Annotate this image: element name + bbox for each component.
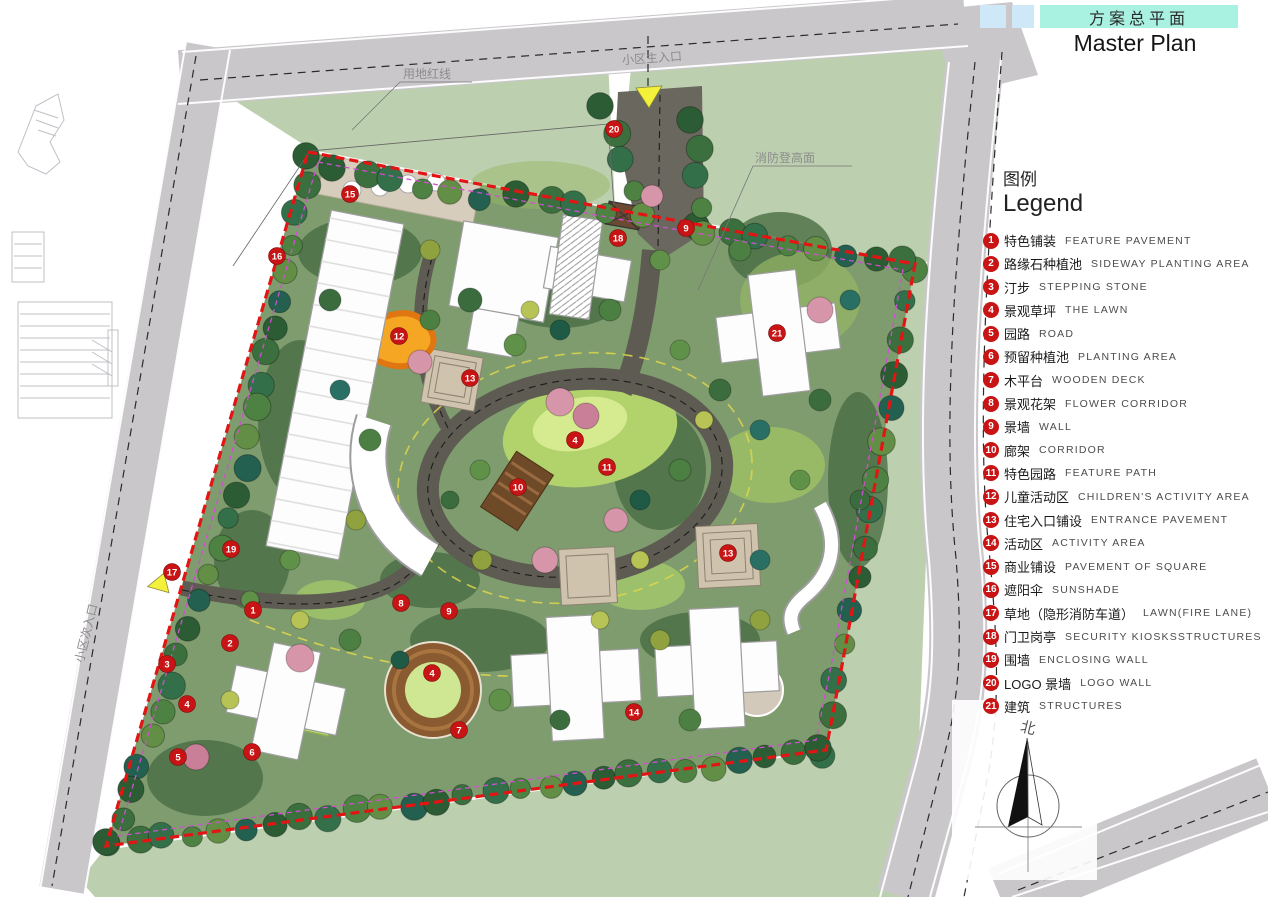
legend-item-en: CORRIDOR (1039, 444, 1106, 456)
plan-marker-number: 15 (345, 189, 356, 200)
legend-item-number: 1 (983, 233, 999, 249)
plan-marker-number: 4 (429, 668, 435, 679)
legend-item-en: LOGO WALL (1080, 677, 1152, 689)
legend-item-en: ENCLOSING WALL (1039, 654, 1149, 666)
legend-item-en: LAWN(FIRE LANE) (1143, 607, 1252, 619)
plan-marker: 13 (462, 370, 479, 387)
legend-item-zh: 特色铺装 (1004, 231, 1056, 250)
legend-item: 2路缘石种植池SIDEWAY PLANTING AREA (983, 255, 1266, 272)
legend-item-en: ROAD (1039, 328, 1074, 340)
legend-item-number: 19 (983, 652, 999, 668)
legend-item-zh: 预留种植池 (1004, 347, 1069, 366)
plan-marker-number: 6 (249, 747, 254, 758)
plan-marker-number: 3 (164, 659, 169, 670)
legend-item-zh: 廊架 (1004, 441, 1030, 460)
legend-item: 13住宅入口铺设ENTRANCE PAVEMENT (983, 512, 1266, 529)
adjacent-cad-outlines (12, 94, 118, 418)
legend-item-zh: 活动区 (1004, 534, 1043, 553)
legend-item-en: PAVEMENT OF SQUARE (1065, 561, 1207, 573)
plan-marker: 9 (678, 220, 695, 237)
plan-marker: 13 (720, 545, 737, 562)
plan-marker-number: 7 (456, 725, 461, 736)
legend-item-en: PLANTING AREA (1078, 351, 1177, 363)
legend-item-number: 5 (983, 326, 999, 342)
legend-item-number: 10 (983, 442, 999, 458)
legend-item: 3汀步STEPPING STONE (983, 279, 1266, 296)
plan-marker: 4 (179, 696, 196, 713)
legend-item: 5园路ROAD (983, 325, 1266, 342)
legend-item: 9景墙WALL (983, 418, 1266, 435)
legend-item: 11特色园路FEATURE PATH (983, 465, 1266, 482)
plan-marker-number: 4 (572, 435, 578, 446)
legend-item-number: 17 (983, 605, 999, 621)
plan-marker-number: 9 (683, 223, 688, 234)
plan-marker: 9 (441, 603, 458, 620)
legend-item-number: 2 (983, 256, 999, 272)
legend-item: 6预留种植池PLANTING AREA (983, 348, 1266, 365)
legend-item-en: STEPPING STONE (1039, 281, 1148, 293)
legend-item-en: FLOWER CORRIDOR (1065, 398, 1188, 410)
plan-marker-number: 16 (272, 251, 283, 262)
legend-item-en: ENTRANCE PAVEMENT (1091, 514, 1228, 526)
legend-item-number: 20 (983, 675, 999, 691)
legend-item-zh: 景观花架 (1004, 394, 1056, 413)
legend-item-number: 15 (983, 559, 999, 575)
legend-title-zh: 图例 (1003, 165, 1266, 190)
plan-marker-number: 19 (226, 544, 237, 555)
legend-item-number: 14 (983, 535, 999, 551)
plan-marker: 7 (451, 722, 468, 739)
plan-marker-number: 14 (629, 707, 640, 718)
legend-item-en: SIDEWAY PLANTING AREA (1091, 258, 1250, 270)
legend-item: 1特色铺装FEATURE PAVEMENT (983, 232, 1266, 249)
plan-marker: 20 (606, 121, 623, 138)
plan-marker: 3 (159, 656, 176, 673)
plan-marker-number: 5 (175, 752, 181, 763)
legend-item-number: 18 (983, 629, 999, 645)
plan-marker: 16 (269, 248, 286, 265)
title-square-2 (1012, 5, 1034, 28)
plan-marker: 8 (393, 595, 410, 612)
master-plan-page: 用地红线 小区主入口 消防登高面 小区次入口 20151618921121341… (0, 0, 1268, 897)
legend-item: 20LOGO 景墙LOGO WALL (983, 675, 1266, 692)
legend-item-zh: 门卫岗亭 (1004, 627, 1056, 646)
legend-item-en: ACTIVITY AREA (1052, 537, 1146, 549)
plan-marker: 4 (424, 665, 441, 682)
legend-item-zh: 路缘石种植池 (1004, 254, 1082, 273)
plan-marker-number: 17 (167, 567, 178, 578)
legend-item: 19围墙ENCLOSING WALL (983, 651, 1266, 668)
plan-marker-number: 13 (723, 548, 734, 559)
legend-item-zh: 草地（隐形消防车道） (1004, 604, 1134, 623)
plan-marker: 12 (391, 328, 408, 345)
legend-item-number: 12 (983, 489, 999, 505)
legend-item: 17草地（隐形消防车道）LAWN(FIRE LANE) (983, 605, 1266, 622)
plan-marker-number: 9 (446, 606, 451, 617)
legend-item-en: FEATURE PAVEMENT (1065, 235, 1192, 247)
plan-marker-number: 13 (465, 373, 476, 384)
legend-item: 4景观草坪THE LAWN (983, 302, 1266, 319)
legend-item-zh: 住宅入口铺设 (1004, 511, 1082, 530)
svg-text:消防登高面: 消防登高面 (755, 150, 815, 165)
legend-item: 18门卫岗亭SECURITY KIOSKSSTRUCTURES (983, 628, 1266, 645)
legend-item-en: CHILDREN'S ACTIVITY AREA (1078, 491, 1250, 503)
legend-item-zh: 景观草坪 (1004, 301, 1056, 320)
legend-item-zh: 木平台 (1004, 371, 1043, 390)
legend-item-en: STRUCTURES (1039, 700, 1123, 712)
legend-item-en: THE LAWN (1065, 304, 1128, 316)
title-square-1 (980, 5, 1006, 28)
legend-item: 21建筑STRUCTURES (983, 698, 1266, 715)
plan-marker: 11 (599, 459, 616, 476)
legend-list: 1特色铺装FEATURE PAVEMENT2路缘石种植池SIDEWAY PLAN… (983, 232, 1266, 715)
legend-item-number: 4 (983, 302, 999, 318)
page-title: 方案总平面 (1040, 5, 1238, 28)
plan-marker-number: 20 (609, 124, 620, 135)
north-arrow: 北 (952, 700, 1097, 880)
legend-item-zh: 遮阳伞 (1004, 580, 1043, 599)
legend-item-en: WALL (1039, 421, 1072, 433)
legend-item-number: 6 (983, 349, 999, 365)
plan-marker-number: 18 (613, 233, 624, 244)
legend-item-en: WOODEN DECK (1052, 374, 1146, 386)
plan-marker: 10 (510, 479, 527, 496)
legend-item-zh: 儿童活动区 (1004, 487, 1069, 506)
legend-item-number: 21 (983, 698, 999, 714)
legend-item-zh: 商业铺设 (1004, 557, 1056, 576)
plan-marker: 19 (223, 541, 240, 558)
legend-item-zh: 建筑 (1004, 697, 1030, 716)
legend-item-zh: 景墙 (1004, 417, 1030, 436)
plan-marker: 5 (170, 749, 187, 766)
legend-item: 14活动区ACTIVITY AREA (983, 535, 1266, 552)
legend-item-en: FEATURE PATH (1065, 467, 1157, 479)
legend-item-zh: 围墙 (1004, 650, 1030, 669)
legend-item-number: 16 (983, 582, 999, 598)
legend-item-number: 3 (983, 279, 999, 295)
legend-item: 10廊架CORRIDOR (983, 442, 1266, 459)
page-title-en: Master Plan (1040, 30, 1230, 57)
legend-panel: 图例 Legend 1特色铺装FEATURE PAVEMENT2路缘石种植池SI… (983, 165, 1266, 721)
plan-marker-number: 10 (513, 482, 524, 493)
plan-marker-number: 4 (184, 699, 190, 710)
legend-item-en: SECURITY KIOSKSSTRUCTURES (1065, 631, 1262, 643)
legend-item-number: 11 (983, 465, 999, 481)
legend-item: 12儿童活动区CHILDREN'S ACTIVITY AREA (983, 488, 1266, 505)
legend-item: 16遮阳伞SUNSHADE (983, 581, 1266, 598)
plan-marker-number: 2 (227, 638, 232, 649)
legend-item-number: 7 (983, 372, 999, 388)
plan-marker-number: 21 (772, 328, 783, 339)
title-block: 方案总平面 (980, 5, 1238, 29)
plan-marker: 17 (164, 564, 181, 581)
legend-item: 15商业铺设PAVEMENT OF SQUARE (983, 558, 1266, 575)
legend-item-en: SUNSHADE (1052, 584, 1120, 596)
plan-marker: 21 (769, 325, 786, 342)
legend-item-zh: LOGO 景墙 (1004, 674, 1071, 693)
svg-text:用地红线: 用地红线 (403, 66, 451, 81)
legend-item: 7木平台WOODEN DECK (983, 372, 1266, 389)
legend-item-number: 8 (983, 396, 999, 412)
legend-item-zh: 特色园路 (1004, 464, 1056, 483)
plan-marker: 2 (222, 635, 239, 652)
legend-item-number: 13 (983, 512, 999, 528)
plan-marker-number: 8 (398, 598, 403, 609)
legend-item-zh: 园路 (1004, 324, 1030, 343)
plan-marker: 4 (567, 432, 584, 449)
plan-marker-number: 11 (602, 462, 613, 473)
legend-item-number: 9 (983, 419, 999, 435)
legend-item: 8景观花架FLOWER CORRIDOR (983, 395, 1266, 412)
plan-marker: 14 (626, 704, 643, 721)
plan-marker: 18 (610, 230, 627, 247)
plan-marker: 6 (244, 744, 261, 761)
legend-item-zh: 汀步 (1004, 278, 1030, 297)
plan-marker-number: 1 (250, 605, 256, 616)
legend-title-en: Legend (1003, 190, 1266, 218)
plan-marker: 15 (342, 186, 359, 203)
plan-marker-number: 12 (394, 331, 405, 342)
plan-marker: 1 (245, 602, 262, 619)
